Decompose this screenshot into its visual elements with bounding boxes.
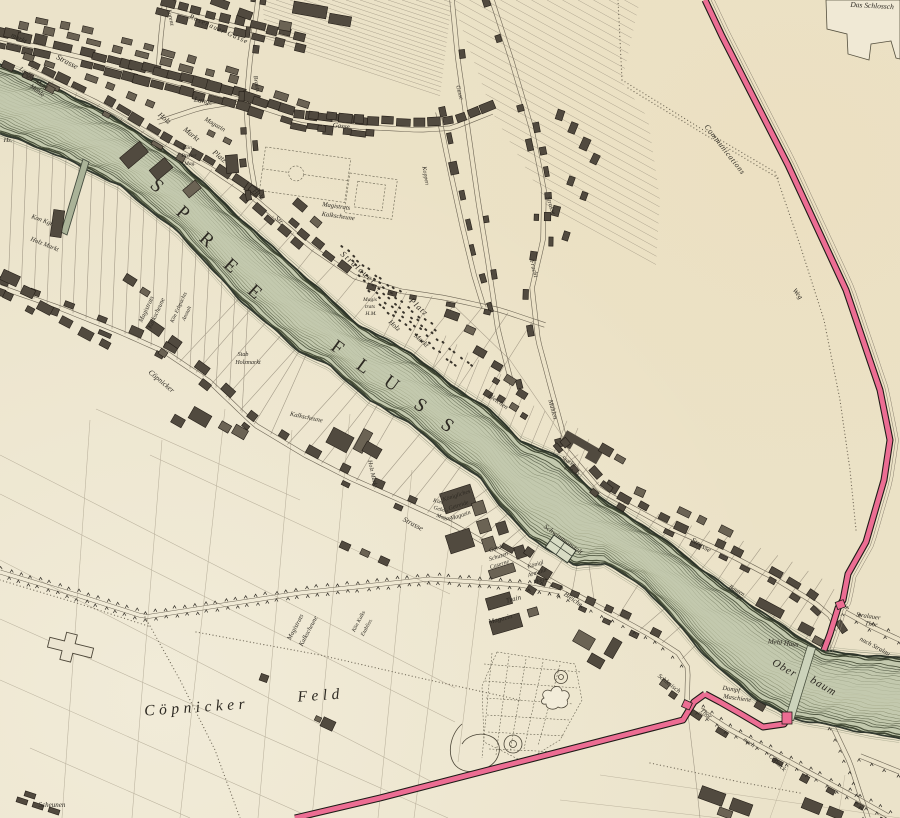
svg-text:Bretter: Bretter	[181, 153, 197, 159]
svg-text:Feld: Feld	[296, 685, 344, 705]
svg-text:H.M.: H.M.	[364, 311, 376, 317]
svg-text:Kön.: Kön.	[182, 145, 194, 151]
svg-text:Scheunen: Scheunen	[39, 801, 66, 809]
svg-text:Mag.: Mag.	[183, 161, 195, 167]
svg-text:Magis: Magis	[362, 297, 377, 303]
svg-text:Stab: Stab	[238, 352, 249, 358]
svg-text:trats: trats	[365, 304, 375, 310]
svg-text:Holzmarkt: Holzmarkt	[234, 360, 261, 366]
svg-text:Hs.: Hs.	[3, 137, 13, 144]
